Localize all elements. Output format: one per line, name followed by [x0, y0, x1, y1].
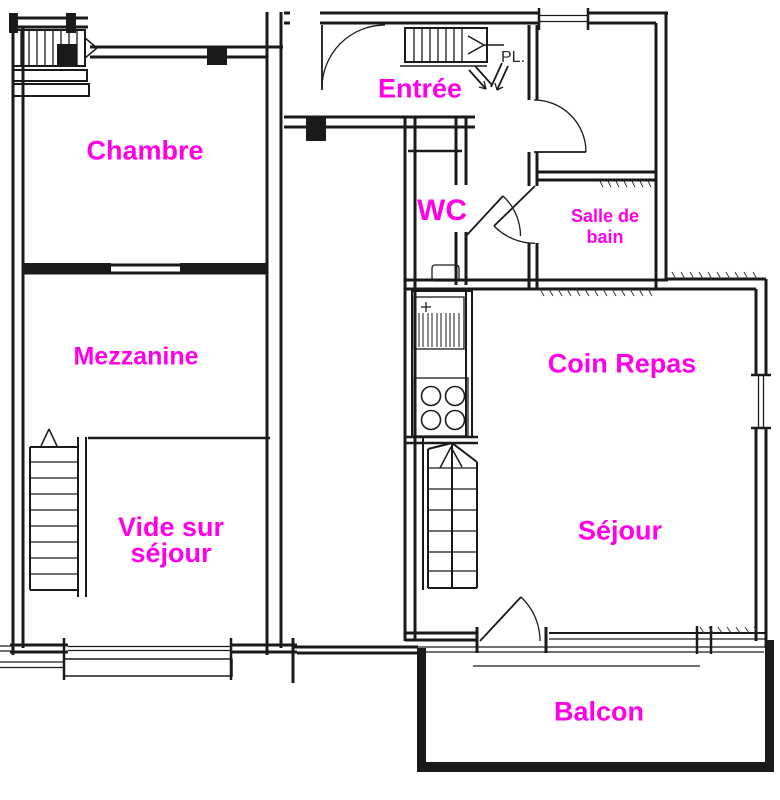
room-label-chambre: Chambre [86, 138, 203, 165]
room-label-wc: WC [417, 196, 467, 226]
room-label-placard: PL. [501, 49, 525, 67]
stove-burner [446, 387, 465, 406]
bain-line2: bain [586, 227, 623, 247]
window-bay-sill [64, 659, 232, 676]
stove-burner [422, 411, 441, 430]
kitchen-unit [412, 291, 472, 437]
room-label-vide-sur-sejour: Vide sur séjour [118, 514, 224, 566]
stair-sejour [423, 437, 477, 590]
room-label-coin-repas: Coin Repas [548, 351, 697, 378]
floorplan-canvas: Chambre Mezzanine Vide sur séjour Entrée… [0, 0, 780, 800]
stair-vide-sur-sejour [30, 429, 86, 597]
stair-direction-arrow [41, 429, 57, 446]
bain-line1: Salle de [571, 206, 639, 226]
hatch-marks [540, 181, 758, 633]
kitchen-sink [414, 297, 464, 349]
stair-entree [400, 28, 504, 66]
wall-jog [306, 117, 326, 141]
stair-chambre [13, 30, 97, 96]
faucet-cross [421, 302, 431, 312]
floorplan-linework [0, 0, 780, 800]
room-label-sejour: Séjour [578, 518, 662, 545]
room-label-balcon: Balcon [554, 699, 644, 726]
stove-burner [422, 387, 441, 406]
room-label-mezzanine: Mezzanine [73, 345, 198, 370]
placard-marks [469, 63, 508, 90]
room-label-salle-de-bain: Salle de bain [571, 206, 639, 248]
vide-line2: séjour [130, 538, 211, 568]
stove-burner [446, 411, 465, 430]
room-label-entree: Entrée [378, 76, 462, 103]
